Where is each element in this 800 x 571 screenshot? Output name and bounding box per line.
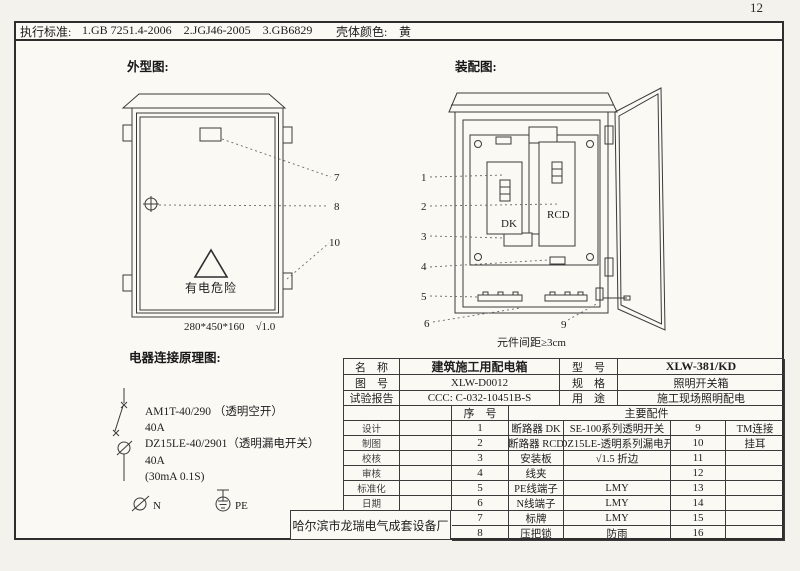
cabinet-opening <box>463 120 600 307</box>
open-door-inner <box>619 94 662 324</box>
part-spec <box>564 466 671 481</box>
leader-10 <box>287 243 329 279</box>
signature-value-cell <box>400 421 452 436</box>
callout-6: 6 <box>424 318 430 330</box>
part-no: 7 <box>452 511 509 526</box>
part-no: 1 <box>452 421 509 436</box>
pe-label: PE <box>235 500 248 512</box>
small-fitting <box>550 257 565 264</box>
parts-header: 主要配件 <box>509 406 785 421</box>
dk-label: DK <box>501 218 517 230</box>
part-spec2 <box>726 511 785 526</box>
part-no2: 9 <box>671 421 726 436</box>
signature-value-cell <box>400 481 452 496</box>
dimension-text: 280*450*160 √1.0 <box>184 321 276 333</box>
drawing-sheet-page: 12 执行标准: 1.GB 7251.4-2006 2.JGJ46-2005 3… <box>0 0 800 571</box>
mount-ear <box>123 125 132 141</box>
part-name: 安装板 <box>509 451 564 466</box>
empty-cell <box>344 406 400 421</box>
info-name-value: 建筑施工用配电箱 <box>400 359 560 375</box>
hinge <box>605 258 613 276</box>
info-name-label: 名 称 <box>344 359 400 375</box>
part-no: 6 <box>452 496 509 511</box>
callout-10: 10 <box>329 237 341 249</box>
plate-screw <box>475 141 482 148</box>
empty-cell <box>400 406 452 421</box>
leader-7 <box>222 139 331 177</box>
part-spec2 <box>726 496 785 511</box>
warning-triangle <box>195 250 227 277</box>
terminal-screw <box>550 292 555 295</box>
hinge <box>605 126 613 144</box>
switch-blade <box>115 406 123 431</box>
callout-4: 4 <box>421 261 427 273</box>
part-spec2 <box>726 466 785 481</box>
plate-screw <box>587 254 594 261</box>
part-spec: DZ15LE-透明系列漏电开 <box>564 436 671 451</box>
info-test-value: CCC: C-032-10451B-S <box>400 391 560 406</box>
manufacturer-box: 哈尔滨市龙瑞电气成套设备厂 <box>290 510 451 540</box>
neutral-label: N <box>153 500 161 512</box>
terminal-bar <box>478 295 522 301</box>
part-no: 2 <box>452 436 509 451</box>
info-spec-value: 照明开关箱 <box>618 375 785 391</box>
signature-value-cell <box>400 436 452 451</box>
warning-text: 有电危险 <box>185 280 237 295</box>
cabinet-roof <box>449 93 617 112</box>
contact-mark <box>113 430 119 436</box>
wire-duct-top <box>529 127 557 143</box>
signature-label: 审核 <box>344 466 400 481</box>
part-no: 8 <box>452 526 509 541</box>
part-spec: LMY <box>564 496 671 511</box>
part-no2: 11 <box>671 451 726 466</box>
leader-6 <box>433 308 520 322</box>
part-spec: 防雨 <box>564 526 671 541</box>
lock-icon <box>143 196 159 212</box>
outline-cabinet: 7 8 10 有电危险 280*450*160 √1.0 <box>123 94 341 333</box>
part-no2: 10 <box>671 436 726 451</box>
terminal-screw <box>513 292 518 295</box>
cabinet-roof <box>123 94 285 108</box>
part-name: 断路器 DK <box>509 421 564 436</box>
rcd-label: RCD <box>547 209 570 221</box>
signature-label: 校核 <box>344 451 400 466</box>
part-name: 压把锁 <box>509 526 564 541</box>
assembly-cabinet: 1 2 3 4 5 6 9 DK RCD 元件间距≥3cm <box>421 88 665 349</box>
part-spec: LMY <box>564 481 671 496</box>
part-spec: LMY <box>564 511 671 526</box>
signature-value-cell <box>400 451 452 466</box>
part-no2: 13 <box>671 481 726 496</box>
signature-value-cell <box>400 466 452 481</box>
part-spec: SE-100系列透明开关 <box>564 421 671 436</box>
part-spec2: TM连接 <box>726 421 785 436</box>
callout-7: 7 <box>334 172 340 184</box>
part-no: 3 <box>452 451 509 466</box>
info-use-label: 用 途 <box>560 391 618 406</box>
part-no2: 12 <box>671 466 726 481</box>
leader-4 <box>430 260 548 267</box>
terminal-bar <box>545 295 587 301</box>
callout-5: 5 <box>421 291 427 303</box>
info-model-value: XLW-381/KD <box>618 359 785 375</box>
signature-label: 设计 <box>344 421 400 436</box>
info-dwg-value: XLW-D0012 <box>400 375 560 391</box>
gap-note: 元件间距≥3cm <box>497 336 566 349</box>
breaker-symbol <box>113 388 132 481</box>
terminal-screw <box>498 292 503 295</box>
part-name: 标牌 <box>509 511 564 526</box>
signature-value-cell <box>400 496 452 511</box>
callout-1: 1 <box>421 172 427 184</box>
info-use-value: 施工现场照明配电 <box>618 391 785 406</box>
mount-ear <box>123 275 132 291</box>
part-spec: √1.5 折边 <box>564 451 671 466</box>
part-no2: 14 <box>671 496 726 511</box>
info-dwg-label: 图 号 <box>344 375 400 391</box>
part-spec2 <box>726 451 785 466</box>
seq-header: 序 号 <box>452 406 509 421</box>
part-no2: 16 <box>671 526 726 541</box>
info-test-label: 试验报告 <box>344 391 400 406</box>
part-name: N线端子 <box>509 496 564 511</box>
info-spec-label: 规 格 <box>560 375 618 391</box>
part-spec2 <box>726 481 785 496</box>
pe-ground-symbol: PE <box>216 490 248 512</box>
part-spec2 <box>726 526 785 541</box>
signature-label: 日期 <box>344 496 400 511</box>
small-fitting <box>496 137 511 144</box>
callout-8: 8 <box>334 201 340 213</box>
part-no: 5 <box>452 481 509 496</box>
terminal-screw <box>483 292 488 295</box>
leader-8 <box>159 205 329 206</box>
part-name: 线夹 <box>509 466 564 481</box>
signature-label: 制图 <box>344 436 400 451</box>
part-spec2: 挂耳 <box>726 436 785 451</box>
info-model-label: 型 号 <box>560 359 618 375</box>
name-plate <box>200 128 221 141</box>
neutral-symbol: N <box>132 496 161 512</box>
leader-9 <box>568 303 598 320</box>
plate-screw <box>587 141 594 148</box>
wire-duct-bottom <box>504 233 532 246</box>
plate-screw <box>475 254 482 261</box>
leader-3 <box>430 236 504 238</box>
callout-3: 3 <box>421 231 427 243</box>
part-name: 断路器 RCD <box>509 436 564 451</box>
part-no2: 15 <box>671 511 726 526</box>
callout-9: 9 <box>561 319 567 331</box>
mount-ear <box>283 127 292 143</box>
callout-2: 2 <box>421 201 427 213</box>
terminal-screw <box>578 292 583 295</box>
part-no: 4 <box>452 466 509 481</box>
terminal-screw <box>565 292 570 295</box>
open-door <box>615 88 665 330</box>
rcd-breaker <box>539 142 575 246</box>
part-name: PE线端子 <box>509 481 564 496</box>
signature-label: 标准化 <box>344 481 400 496</box>
